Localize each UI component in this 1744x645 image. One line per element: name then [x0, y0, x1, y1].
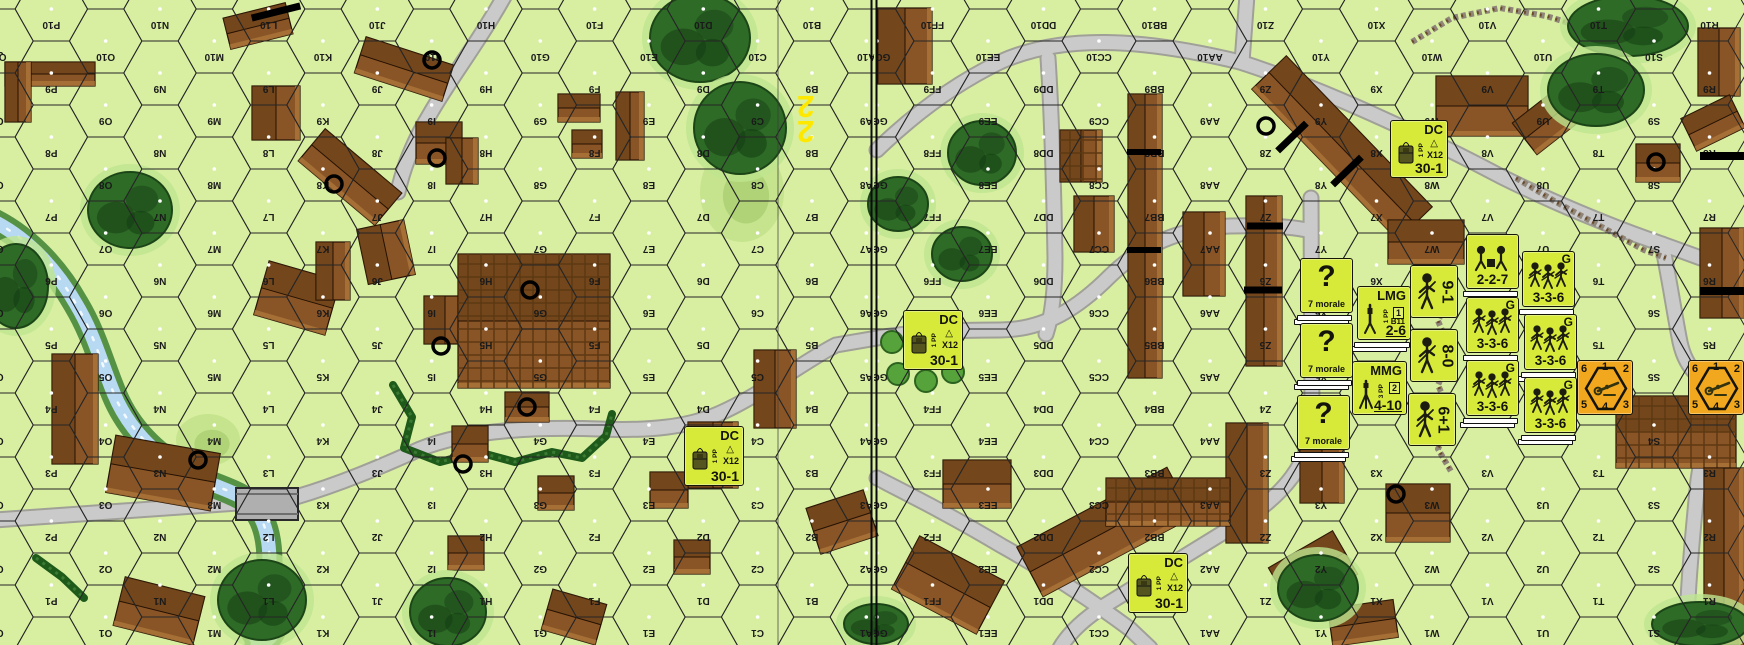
- hex-label: J5: [371, 339, 383, 350]
- hex-label: P2: [45, 531, 58, 542]
- hex-label: F10: [586, 19, 604, 30]
- hex-label: C1: [751, 627, 764, 638]
- building: [1386, 484, 1450, 542]
- hex-label: AA2: [1200, 563, 1220, 574]
- satchel-icon: [1133, 570, 1155, 600]
- hex-label: CC9: [1089, 115, 1109, 126]
- hex-label: W8: [1424, 179, 1439, 190]
- hex-label: I3: [427, 499, 436, 510]
- hex-label: M7: [207, 243, 221, 254]
- counter-mmg[interactable]: MMG 3 PP 2 4-10: [1352, 361, 1407, 415]
- hex-label: H10: [476, 19, 495, 30]
- hex-label: Q4: [0, 435, 4, 446]
- hex-label: DD10: [1030, 19, 1056, 30]
- hex-label: N2: [153, 531, 166, 542]
- hex-label: CC10: [1086, 51, 1112, 62]
- hex-label: C10: [748, 51, 767, 62]
- lmg-icon: [1362, 303, 1378, 335]
- concealment-question: ?: [1301, 262, 1352, 292]
- hex-label: CC3: [1089, 499, 1109, 510]
- hex-label: U8: [1536, 179, 1549, 190]
- usage-number: X12: [723, 457, 739, 466]
- hex-label: P6: [45, 275, 58, 286]
- hex-label: EE7: [978, 243, 997, 254]
- counter-gun-1[interactable]: 6 1 2 5 4 3: [1577, 360, 1633, 415]
- hex-label: Z6: [1259, 275, 1271, 286]
- hex-label: Q10: [0, 51, 6, 62]
- hex-label: P7: [45, 211, 58, 222]
- crew-icon: [1472, 244, 1510, 272]
- hex-label: V7: [1481, 211, 1494, 222]
- hex-label: P1: [45, 595, 58, 606]
- hex-label: Y8: [1314, 179, 1327, 190]
- hex-label: X6: [1370, 275, 1383, 286]
- hex-label: D9: [696, 83, 709, 94]
- hex-label: N9: [153, 83, 166, 94]
- hex-label: BB3: [1144, 467, 1164, 478]
- squad-icon: [1530, 387, 1572, 415]
- hex-label: Z5: [1259, 339, 1271, 350]
- dc-title: DC: [1424, 123, 1443, 136]
- hex-label: EE3: [978, 499, 997, 510]
- hex-label: B10: [802, 19, 821, 30]
- hex-label: BB5: [1144, 339, 1164, 350]
- hex-label: W3: [1424, 499, 1439, 510]
- hex-label: Q8: [0, 179, 4, 190]
- squad-icon: [1472, 307, 1514, 335]
- hex-label: S5: [1647, 371, 1660, 382]
- hex-label: S7: [1647, 243, 1660, 254]
- pp-label: 1 PP: [1419, 143, 1426, 157]
- hex-label: Y1: [1314, 627, 1327, 638]
- hex-label: B2: [805, 531, 818, 542]
- hex-label: Z8: [1259, 147, 1271, 158]
- hex-label: J6: [371, 275, 383, 286]
- hex-label: P9: [45, 83, 58, 94]
- hex-label: I4: [427, 435, 436, 446]
- hex-label: P3: [45, 467, 58, 478]
- soldier-icon: [1414, 400, 1436, 440]
- concealment-question: ?: [1298, 399, 1349, 429]
- hex-label: DD8: [1033, 147, 1053, 158]
- unit-factors: 3-3-6: [1523, 291, 1574, 305]
- building: [446, 138, 478, 184]
- hex-label: A10: [857, 51, 876, 62]
- hex-label: FF1: [923, 595, 941, 606]
- hex-label: U2: [1536, 563, 1549, 574]
- hex-label: I9: [427, 115, 436, 126]
- hex-label: Y9: [1314, 115, 1327, 126]
- hex-label: AA4: [1200, 435, 1220, 446]
- hex-label: D5: [696, 339, 709, 350]
- hex-label: Q7: [0, 243, 4, 254]
- hex-label: E4: [642, 435, 655, 446]
- counter-gun-2[interactable]: 6 1 2 5 4 3: [1688, 360, 1744, 415]
- hex-label: AA6: [1200, 307, 1220, 318]
- hex-label: F3: [588, 467, 600, 478]
- hex-label: AA5: [1200, 371, 1220, 382]
- hex-label: DD3: [1033, 467, 1053, 478]
- hex-label: L4: [262, 403, 274, 414]
- counter-conceal-1[interactable]: ? 7 morale: [1300, 258, 1353, 313]
- soldier-icon: [1416, 336, 1438, 376]
- hex-label: AA3: [1200, 499, 1220, 510]
- stack-edge: [1463, 418, 1518, 424]
- usage-number: X12: [1427, 151, 1443, 160]
- hex-label: CC1: [1089, 627, 1109, 638]
- pp-label: 1 PP: [932, 333, 939, 347]
- hex-label: N8: [153, 147, 166, 158]
- hex-label: J2: [371, 531, 383, 542]
- building: [1700, 228, 1744, 318]
- hex-label: F8: [588, 147, 600, 158]
- counter-squad-2[interactable]: G 3-3-6: [1466, 360, 1519, 416]
- hex-label: DD6: [1033, 275, 1053, 286]
- hex-label: FF10: [920, 19, 944, 30]
- hex-label: S3: [1647, 499, 1660, 510]
- hex-label: T2: [1592, 531, 1604, 542]
- hex-label: EE9: [978, 115, 997, 126]
- hex-label: N6: [153, 275, 166, 286]
- counter-dc-1[interactable]: DC 1 PP △ X12 30-1: [684, 426, 744, 486]
- hex-label: Y10: [1312, 51, 1330, 62]
- dc-value: 30-1: [1415, 161, 1443, 175]
- hex-label: L8: [262, 147, 274, 158]
- hex-label: D4: [696, 403, 709, 414]
- hex-label: O8: [99, 179, 113, 190]
- hex-label: Y2: [1314, 563, 1327, 574]
- hex-label: O9: [99, 115, 113, 126]
- hex-label: BB6: [1144, 275, 1164, 286]
- hex-label: H3: [479, 467, 492, 478]
- stack-edge: [1297, 380, 1352, 386]
- hex-label: G8: [533, 179, 547, 190]
- hex-label: R6: [1703, 275, 1716, 286]
- hex-label: C6: [751, 307, 764, 318]
- hex-label: F7: [588, 211, 600, 222]
- hex-label: G3: [533, 499, 547, 510]
- hex-label: X7: [1370, 211, 1383, 222]
- arc-number: 3: [1623, 400, 1629, 411]
- sw-value: 2-6: [1386, 323, 1406, 337]
- hex-label: T6: [1592, 275, 1604, 286]
- hex-label: U9: [1536, 115, 1549, 126]
- hex-label: H7: [479, 211, 492, 222]
- hex-label: P5: [45, 339, 58, 350]
- hex-label: B1: [805, 595, 818, 606]
- hex-label: K10: [313, 51, 332, 62]
- hex-label: N4: [153, 403, 166, 414]
- hex-label: U10: [1533, 51, 1552, 62]
- hex-label: FF3: [923, 467, 941, 478]
- hex-label: H2: [479, 531, 492, 542]
- hex-label: V3: [1481, 467, 1494, 478]
- hex-label: DD5: [1033, 339, 1053, 350]
- hex-label: T9: [1592, 83, 1604, 94]
- squad-icon: [1528, 261, 1570, 289]
- hex-label: H8: [479, 147, 492, 158]
- counter-conceal-2[interactable]: ? 7 morale: [1300, 323, 1353, 378]
- squad-icon: [1472, 370, 1514, 398]
- hex-label: Q2: [0, 563, 4, 574]
- hex-label: U1: [1536, 627, 1549, 638]
- hex-label: I6: [427, 307, 436, 318]
- mmg-icon: [1357, 378, 1375, 410]
- arc-number: 3: [1734, 400, 1740, 411]
- hex-label: F6: [588, 275, 600, 286]
- hex-label: N7: [153, 211, 166, 222]
- dc-title: DC: [1164, 556, 1183, 569]
- hex-label: K5: [316, 371, 329, 382]
- sw-title: MMG: [1370, 364, 1402, 377]
- hex-label: Z10: [1256, 19, 1274, 30]
- hex-label: K3: [316, 499, 329, 510]
- hex-label: C8: [751, 179, 764, 190]
- hex-label: K4: [316, 435, 329, 446]
- hex-label: O3: [99, 499, 113, 510]
- hex-label: H6: [479, 275, 492, 286]
- hex-label: B4: [805, 403, 818, 414]
- stack-edge: [1354, 342, 1410, 348]
- hex-label: O10: [96, 51, 115, 62]
- hex-label: J4: [371, 403, 383, 414]
- hex-label: T1: [1592, 595, 1604, 606]
- satchel-icon: [1395, 137, 1417, 167]
- hex-label: D2: [696, 531, 709, 542]
- hex-label: DD7: [1033, 211, 1053, 222]
- building: [616, 92, 644, 160]
- boxed-triangle: △: [726, 445, 734, 455]
- hex-label: G1: [533, 627, 547, 638]
- hex-label: M4: [207, 435, 221, 446]
- counter-dc-3[interactable]: DC 1 PP △ X12 30-1: [1128, 553, 1188, 613]
- counter-squad-5[interactable]: G 3-3-6: [1524, 377, 1577, 433]
- pp-box: 2: [1389, 382, 1400, 394]
- hex-label: W2: [1424, 563, 1439, 574]
- hex-label: G7: [533, 243, 547, 254]
- hex-label: EE2: [978, 563, 997, 574]
- building: [1636, 144, 1680, 182]
- arc-number: 2: [1734, 364, 1740, 375]
- hex-label: Y7: [1314, 243, 1327, 254]
- hex-label: S2: [1647, 563, 1660, 574]
- hex-label: I8: [427, 179, 436, 190]
- soldier-icon: [1416, 272, 1438, 312]
- hex-label: R5: [1703, 339, 1716, 350]
- hex-label: G2: [533, 563, 547, 574]
- squad-icon: [1530, 324, 1572, 352]
- counter-leader-80[interactable]: 8-0: [1410, 329, 1458, 382]
- morale-label: 7 morale: [1301, 365, 1352, 374]
- hex-label: O1: [99, 627, 113, 638]
- hex-label: R10: [1700, 19, 1719, 30]
- hex-label: G5: [533, 371, 547, 382]
- dc-value: 30-1: [930, 353, 958, 367]
- unit-factors: 3-3-6: [1525, 417, 1576, 431]
- building: [558, 94, 600, 122]
- hex-label: D10: [694, 19, 713, 30]
- hex-label: F4: [588, 403, 600, 414]
- hex-label: S4: [1647, 435, 1660, 446]
- hex-label: EE8: [978, 179, 997, 190]
- gun-crew-icon: [1591, 380, 1621, 397]
- dc-value: 30-1: [711, 469, 739, 483]
- hex-label: S10: [1645, 51, 1663, 62]
- hex-label: L10: [260, 19, 278, 30]
- hex-label: C7: [751, 243, 764, 254]
- hex-label: FF6: [923, 275, 941, 286]
- hex-label: CC5: [1089, 371, 1109, 382]
- hex-label: AA8: [1200, 179, 1220, 190]
- building: [5, 62, 31, 122]
- hex-label: M5: [207, 371, 221, 382]
- counter-dc-2[interactable]: DC 1 PP △ X12 30-1: [903, 310, 963, 370]
- hex-label: FF4: [923, 403, 941, 414]
- pp-label: 1 PP: [713, 449, 720, 463]
- unit-factors: 2-2-7: [1467, 273, 1518, 287]
- hex-label: H9: [479, 83, 492, 94]
- hex-label: DD9: [1033, 83, 1053, 94]
- stack-edge: [1521, 435, 1576, 441]
- hex-label: O2: [99, 563, 113, 574]
- hex-label: B5: [805, 339, 818, 350]
- counter-conceal-3[interactable]: ? 7 morale: [1297, 395, 1350, 450]
- hex-label: Q9: [0, 115, 4, 126]
- hex-label: G6: [533, 307, 547, 318]
- hex-label: X9: [1370, 83, 1383, 94]
- hex-label: Z2: [1259, 531, 1271, 542]
- hex-label: E7: [642, 243, 655, 254]
- stack-edge: [1297, 315, 1352, 321]
- hex-label: E10: [640, 51, 658, 62]
- hex-label: F1: [588, 595, 600, 606]
- leader-value: 8-0: [1438, 344, 1454, 367]
- hex-label: R3: [1703, 467, 1716, 478]
- pp-label: 1 PP: [1157, 576, 1164, 590]
- hex-label: FF2: [923, 531, 941, 542]
- building: [754, 350, 796, 428]
- hex-label: V8: [1481, 147, 1494, 158]
- hex-label: AA10: [1197, 51, 1223, 62]
- hex-label: Q5: [0, 371, 4, 382]
- hex-label: DD4: [1033, 403, 1053, 414]
- counter-squad-4[interactable]: G 3-3-6: [1524, 314, 1577, 370]
- dc-title: DC: [939, 313, 958, 326]
- hex-label: M3: [207, 499, 221, 510]
- hex-label: X8: [1370, 147, 1383, 158]
- hex-label: M1: [207, 627, 221, 638]
- hex-label: V2: [1481, 531, 1494, 542]
- hex-label: D1: [696, 595, 709, 606]
- hex-label: W1: [1424, 627, 1439, 638]
- hex-label: K1: [316, 627, 329, 638]
- hex-label: E5: [642, 371, 655, 382]
- unit-factors: 3-3-6: [1467, 337, 1518, 351]
- hex-label: T8: [1592, 147, 1604, 158]
- board-number: 2 2: [797, 94, 814, 144]
- hex-label: F5: [588, 339, 600, 350]
- dc-value: 30-1: [1155, 596, 1183, 610]
- building: [943, 460, 1011, 508]
- hex-label: FF8: [923, 147, 941, 158]
- hex-label: Q6: [0, 307, 4, 318]
- hex-label: I5: [427, 371, 436, 382]
- counter-leader-61[interactable]: 6+1: [1408, 393, 1456, 446]
- concealment-question: ?: [1301, 327, 1352, 357]
- hex-label: BB2: [1144, 531, 1164, 542]
- building: [1060, 130, 1102, 182]
- hex-label: R1: [1703, 595, 1716, 606]
- usage-number: X12: [942, 341, 958, 350]
- hex-label: Z7: [1259, 211, 1271, 222]
- hex-label: X10: [1367, 19, 1385, 30]
- building: [1226, 423, 1268, 543]
- hex-label: K6: [316, 307, 329, 318]
- hex-label: N10: [150, 19, 169, 30]
- map-viewport[interactable]: Q10Q9Q8Q7Q6Q5Q4Q3Q2Q1P10P9P8P7P6P5P4P3P2…: [0, 0, 1744, 645]
- hex-label: L5: [262, 339, 274, 350]
- hex-label: P8: [45, 147, 58, 158]
- arc-number: 2: [1623, 364, 1629, 375]
- gun-crew-icon: [1702, 380, 1732, 397]
- hex-label: S8: [1647, 179, 1660, 190]
- hex-label: S1: [1647, 627, 1660, 638]
- counter-squad-3[interactable]: G 3-3-6: [1522, 251, 1575, 307]
- hex-label: FF7: [923, 211, 941, 222]
- hex-label: J7: [371, 211, 383, 222]
- hex-label: K2: [316, 563, 329, 574]
- building: [674, 540, 710, 574]
- hex-label: CC8: [1089, 179, 1109, 190]
- boxed-triangle: △: [945, 329, 953, 339]
- hex-label: M9: [207, 115, 221, 126]
- hex-label: J9: [371, 83, 383, 94]
- hex-label: Z9: [1259, 83, 1271, 94]
- hex-label: AA7: [1200, 243, 1220, 254]
- hex-label: L1: [262, 595, 274, 606]
- hex-label: S9: [1647, 115, 1660, 126]
- boxed-triangle: △: [1170, 572, 1178, 582]
- hex-label: EE10: [975, 51, 1000, 62]
- hex-label: CC2: [1089, 563, 1109, 574]
- hex-label: C4: [751, 435, 764, 446]
- dc-title: DC: [720, 429, 739, 442]
- hex-label: C3: [751, 499, 764, 510]
- hex-label: J1: [371, 595, 383, 606]
- hex-label: K9: [316, 115, 329, 126]
- hex-label: N3: [153, 467, 166, 478]
- hex-label: DD2: [1033, 531, 1053, 542]
- counter-squad-1[interactable]: G 3-3-6: [1466, 297, 1519, 353]
- hex-label: N1: [153, 595, 166, 606]
- hex-label: E6: [642, 307, 655, 318]
- hex-label: C5: [751, 371, 764, 382]
- sw-title: LMG: [1377, 289, 1406, 302]
- unit-factors: 3-3-6: [1467, 400, 1518, 414]
- hex-label: L3: [262, 467, 274, 478]
- sw-value: 4-10: [1374, 398, 1402, 412]
- hex-label: P10: [42, 19, 60, 30]
- hex-label: X2: [1370, 531, 1383, 542]
- hex-label: K7: [316, 243, 329, 254]
- counter-lmg[interactable]: LMG 1 PP 1 B11 2-6: [1357, 286, 1411, 340]
- hex-label: T5: [1592, 339, 1604, 350]
- counter-leader-91[interactable]: 9-1: [1410, 265, 1458, 318]
- counter-dc-4[interactable]: DC 1 PP △ X12 30-1: [1390, 120, 1448, 178]
- hex-label: AA1: [1200, 627, 1220, 638]
- hex-label: Y3: [1314, 499, 1327, 510]
- counter-crew-227[interactable]: 2-2-7: [1466, 234, 1519, 289]
